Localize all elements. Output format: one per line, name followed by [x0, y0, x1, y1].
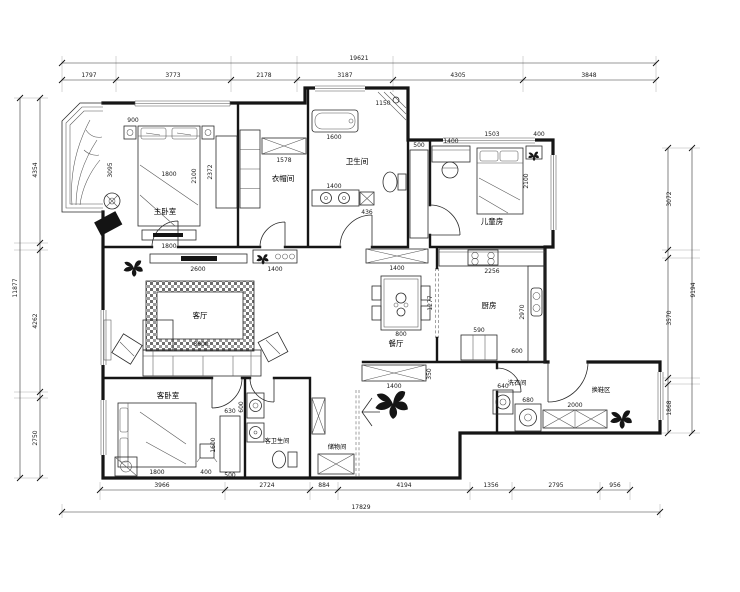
dim-right-total: 9194 — [690, 282, 697, 297]
dim-master-bed: 1800 — [161, 171, 176, 178]
label-kitchen: 厨房 — [482, 300, 497, 310]
dim-bottom-seg-3: 884 — [318, 482, 330, 489]
dim-left-total: 11877 — [12, 278, 19, 297]
label-living-room: 客厅 — [193, 310, 208, 320]
room-cloakroom: 1578 衣帽间 — [240, 130, 306, 208]
dim-kitchen-depth: 2970 — [519, 304, 526, 319]
entrance-door — [548, 362, 588, 402]
dim-right-seg-3: 1868 — [666, 400, 673, 415]
dim-master-wardrobe: 2372 — [207, 164, 214, 179]
label-kids-room: 儿童房 — [481, 216, 504, 226]
dim-bottom-seg-2: 2724 — [259, 482, 274, 489]
dim-top-seg-4: 3187 — [337, 72, 352, 79]
room-guest-bedroom: 1800 400 630 1600 客卧室 — [115, 390, 240, 476]
label-laundry: 洗衣间 — [508, 379, 527, 387]
dim-left: 4354 4262 2750 11877 — [12, 95, 43, 481]
room-dining: 1400 800 餐厅 — [366, 249, 430, 348]
dim-top-total: 19621 — [349, 55, 368, 62]
label-shoe-area: 换鞋区 — [592, 386, 611, 394]
entry-area: 1400 350 — [362, 365, 433, 426]
dim-kitchen-door: 1277 — [427, 295, 434, 310]
dim-right-seg-2: 3570 — [666, 310, 673, 325]
dim-extension-lines — [14, 56, 700, 518]
label-bathroom: 卫生间 — [346, 156, 369, 166]
label-storage: 储物间 — [328, 443, 347, 451]
dim-bottom-seg-5: 1356 — [483, 482, 498, 489]
room-bathroom: 1600 1150 1400 436 卫生间 — [312, 92, 406, 216]
dim-guest-bath-washer: 600 — [238, 401, 245, 413]
dim-bath-vanity-depth: 436 — [361, 209, 373, 216]
dim-guest-wardrobe-w: 630 — [224, 408, 236, 415]
label-guest-bathroom: 客卫生间 — [265, 437, 290, 445]
room-living: 1400 2600 客厅 3600 — [112, 250, 297, 376]
dim-bottom-seg-7: 956 — [609, 482, 621, 489]
dim-right-seg-1: 3072 — [666, 191, 673, 206]
dim-top-seg-1: 1797 — [81, 72, 96, 79]
dim-master-tv: 1800 — [161, 243, 176, 250]
dim-dining-table: 800 — [395, 331, 407, 338]
dim-hall-cabinet: 500 — [413, 142, 425, 149]
dim-right: 3072 3570 1868 9194 — [665, 145, 697, 436]
dim-top-seg-3: 2178 — [256, 72, 271, 79]
dim-guest-bed: 1800 — [149, 469, 164, 476]
label-cloakroom: 衣帽间 — [272, 173, 295, 183]
entry-arrow — [362, 398, 380, 426]
dim-cloak-shelf: 1578 — [276, 157, 291, 164]
dim-bath-tub: 1600 — [326, 134, 341, 141]
dim-entry-cabinet-depth: 350 — [426, 368, 433, 380]
dim-bath-vanity: 1400 — [326, 183, 341, 190]
dim-bottom: 3966 2724 884 4194 1356 2795 956 17829 — [59, 482, 663, 515]
dim-dining-sideboard: 1400 — [389, 265, 404, 272]
dim-bottom-seg-4: 4194 — [396, 482, 411, 489]
floor-plan-page: 19621 1797 3773 2178 3187 4305 3848 3966… — [0, 0, 740, 592]
dim-guest-wardrobe-d: 500 — [224, 472, 236, 479]
room-master-bedroom: 1800 2100 900 3095 2372 1800 主卧室 — [107, 117, 237, 250]
dim-left-seg-2: 4262 — [32, 313, 39, 328]
label-guest-bedroom: 客卧室 — [157, 390, 180, 400]
dim-laundry-b: 680 — [522, 397, 534, 404]
dim-master-depth: 3095 — [107, 162, 114, 177]
label-master-bedroom: 主卧室 — [154, 206, 177, 216]
dim-kids-b: 400 — [533, 131, 545, 138]
room-laundry: 640 680 洗衣间 — [493, 379, 541, 431]
dim-kids-a: 1503 — [484, 131, 499, 138]
room-kitchen: 2256 2970 600 590 1277 厨房 — [427, 249, 545, 362]
dim-bath-shower: 1150 — [375, 100, 390, 107]
dim-left-seg-3: 2750 — [32, 430, 39, 445]
dim-living-tv: 2600 — [190, 266, 205, 273]
room-storage: 储物间 — [312, 398, 354, 474]
room-shoe-area: 2000 换鞋区 — [543, 386, 632, 429]
dim-top-seg-5: 4305 — [450, 72, 465, 79]
balcony-stool — [94, 211, 122, 236]
dim-bottom-seg-1: 3966 — [154, 482, 169, 489]
dim-master-bed-len: 2100 — [191, 168, 198, 183]
dim-top-seg-6: 3848 — [581, 72, 596, 79]
dim-guest-wardrobe-h: 1600 — [210, 437, 217, 452]
hall-cabinet: 500 — [410, 142, 428, 238]
dim-bottom-seg-6: 2795 — [548, 482, 563, 489]
dim-kitchen-counter: 2256 — [484, 268, 499, 275]
floor-plan-canvas: 19621 1797 3773 2178 3187 4305 3848 3966… — [0, 0, 740, 592]
dim-bottom-total: 17829 — [351, 504, 370, 511]
dim-master-nightstand: 900 — [127, 117, 139, 124]
dim-top: 19621 1797 3773 2178 3187 4305 3848 — [59, 55, 659, 83]
dim-living-sofa: 3600 — [193, 341, 208, 348]
living-tv — [181, 256, 217, 261]
label-dining-room: 餐厅 — [389, 339, 404, 348]
dim-living-console: 1400 — [267, 266, 282, 273]
dim-kitchen-sink: 600 — [511, 348, 523, 355]
dim-left-seg-1: 4354 — [32, 162, 39, 177]
dim-entry-cabinet: 1400 — [386, 383, 401, 390]
master-wardrobe — [216, 136, 237, 208]
dim-guest-bench: 400 — [200, 469, 212, 476]
dim-kids-bed: 2100 — [523, 173, 530, 188]
dim-top-seg-2: 3773 — [165, 72, 180, 79]
dim-kitchen-island: 590 — [473, 327, 485, 334]
room-guest-bathroom: 600 500 客卫生间 — [224, 393, 297, 479]
dim-kids-desk: 1400 — [443, 138, 458, 145]
master-tv — [153, 233, 183, 237]
dim-shoe-bench: 2000 — [567, 402, 582, 409]
